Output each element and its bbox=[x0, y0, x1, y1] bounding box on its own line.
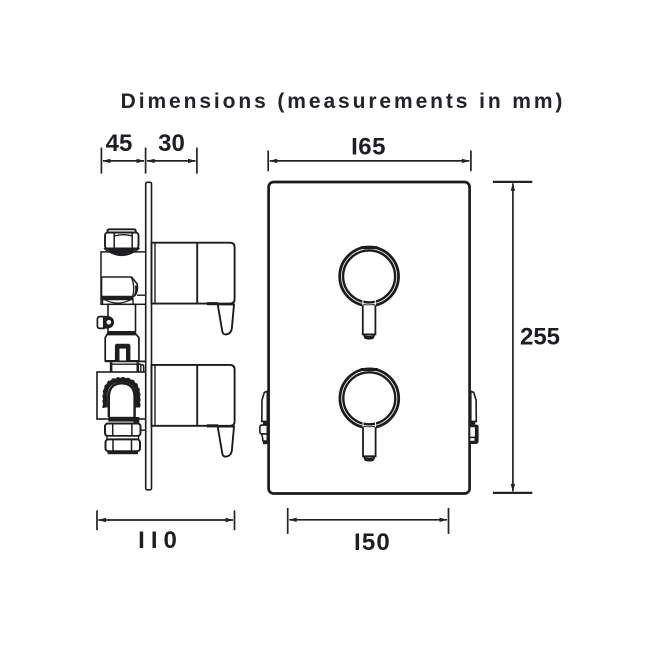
svg-text:Dimensions (measurements in mm: Dimensions (measurements in mm) bbox=[121, 90, 566, 113]
svg-text:45: 45 bbox=[106, 130, 133, 157]
svg-text:I65: I65 bbox=[351, 134, 386, 161]
svg-text:II0: II0 bbox=[138, 527, 183, 554]
svg-text:255: 255 bbox=[520, 324, 560, 351]
svg-text:I50: I50 bbox=[354, 529, 391, 556]
svg-text:30: 30 bbox=[158, 130, 185, 157]
